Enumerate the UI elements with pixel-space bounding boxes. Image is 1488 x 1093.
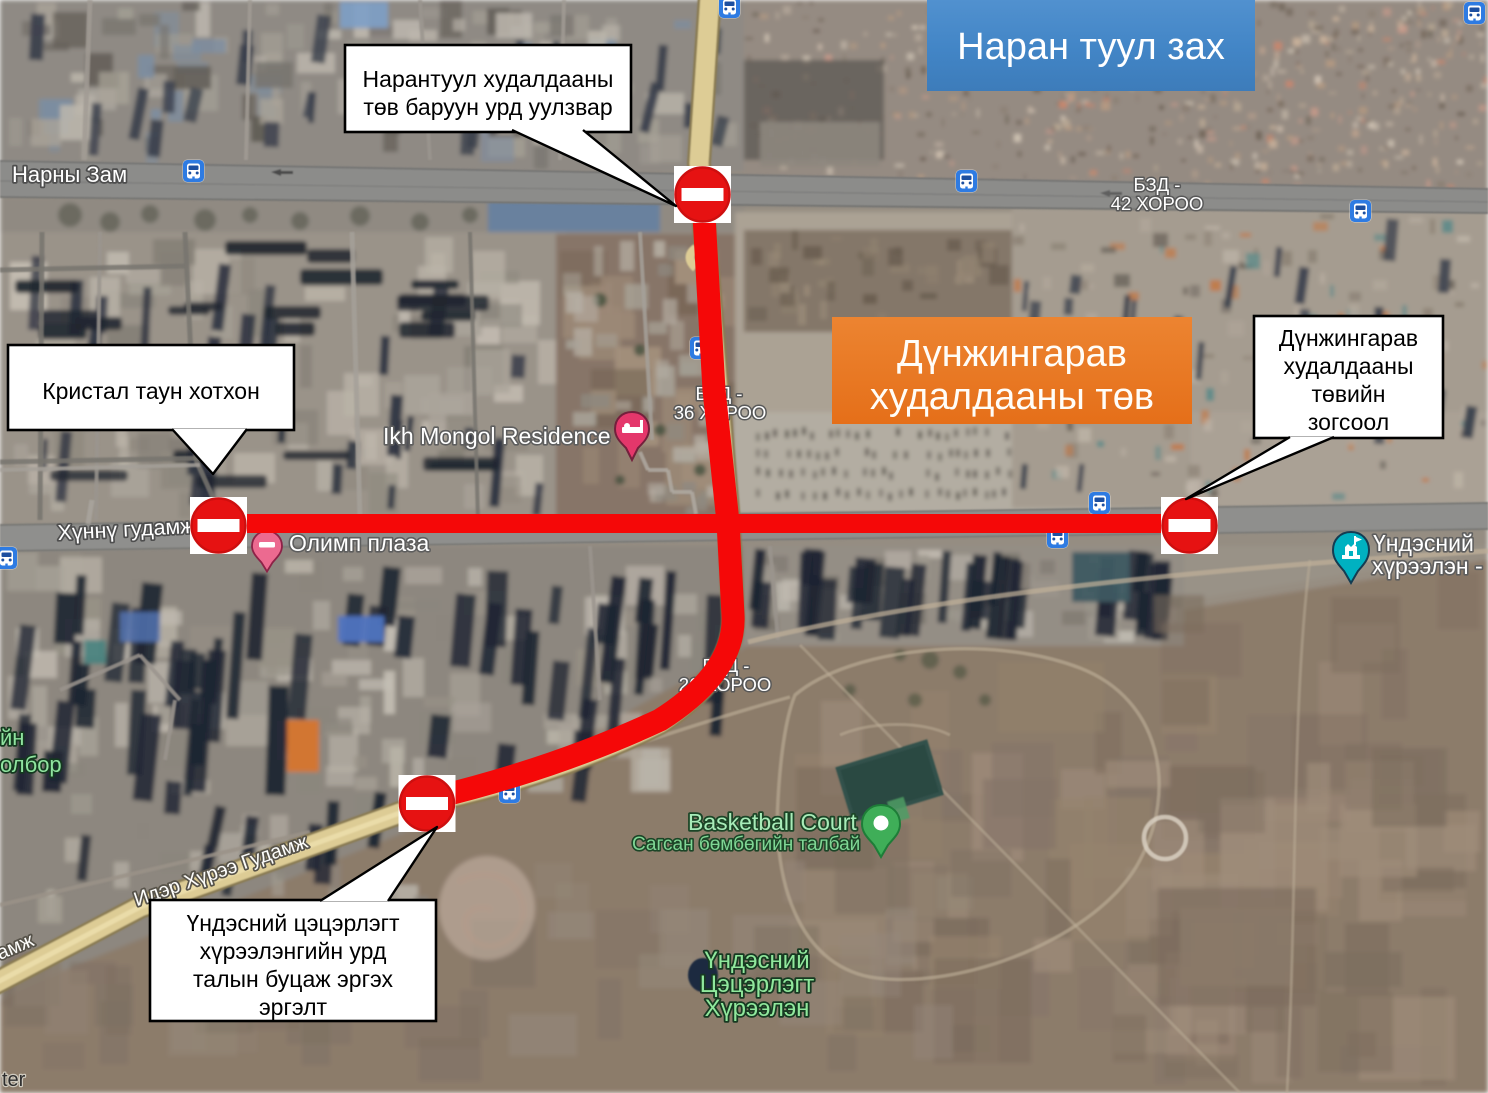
svg-text:ter: ter — [2, 1069, 26, 1091]
svg-text:42 ХОРОО: 42 ХОРОО — [1111, 193, 1204, 214]
svg-text:Дүнжингарав: Дүнжингарав — [897, 333, 1127, 375]
svg-text:Наран туул зах: Наран туул зах — [957, 26, 1225, 68]
svg-text:Нарны Зам: Нарны Зам — [12, 162, 127, 187]
svg-text:хүрээлэн -: хүрээлэн - — [1372, 553, 1483, 579]
svg-text:БЗД -: БЗД - — [1134, 174, 1181, 195]
svg-text:Хүрээлэн: Хүрээлэн — [705, 995, 810, 1022]
svg-text:олбор: олбор — [0, 752, 62, 777]
svg-text:йн: йн — [0, 725, 24, 750]
svg-text:Ikh Mongol Residence: Ikh Mongol Residence — [383, 423, 611, 449]
svg-text:Basketball Court: Basketball Court — [688, 809, 857, 835]
svg-text:Цэцэрлэгт: Цэцэрлэгт — [700, 971, 815, 998]
svg-text:Олимп плаза: Олимп плаза — [289, 530, 430, 556]
svg-text:Кристал таун хотхон: Кристал таун хотхон — [42, 378, 260, 404]
svg-text:Сагсан бөмбөгийн талбай: Сагсан бөмбөгийн талбай — [632, 834, 860, 855]
svg-text:Үндэсний: Үндэсний — [704, 947, 809, 974]
svg-text:худалдааны төв: худалдааны төв — [870, 376, 1154, 418]
